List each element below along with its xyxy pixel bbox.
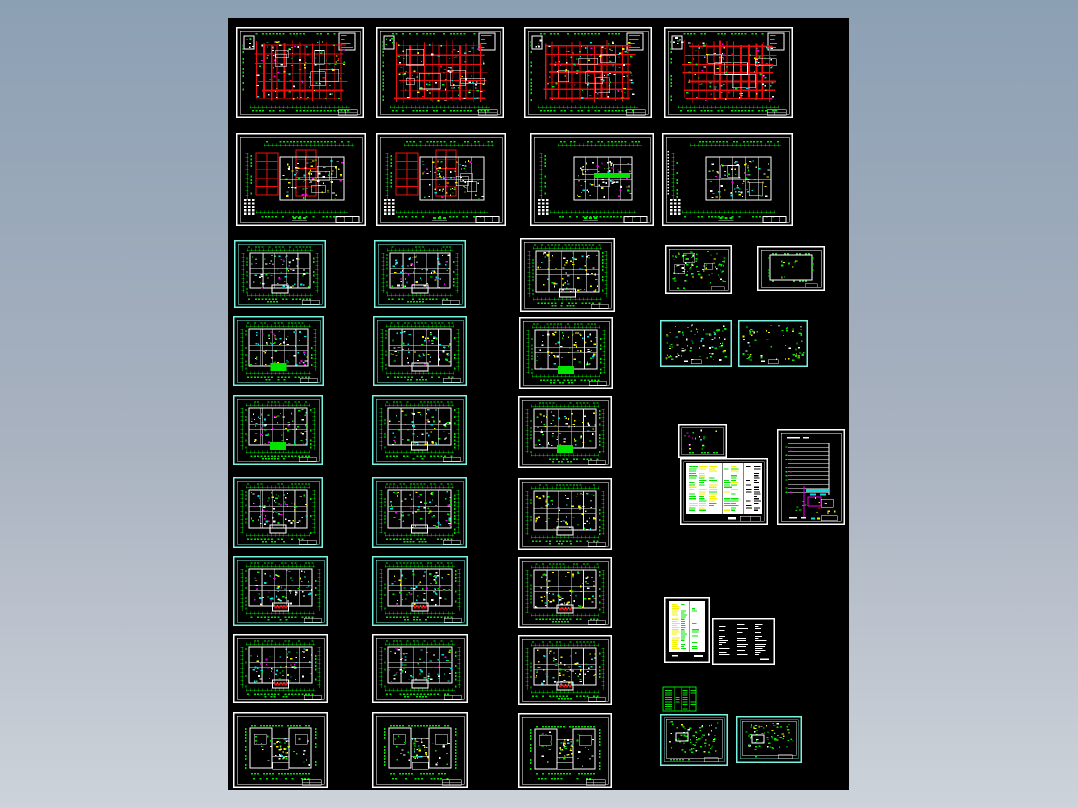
cad-sheet-plan-4: [664, 27, 793, 118]
cad-sheet-roof-1: [233, 712, 328, 788]
cad-sheet-tower-12: [518, 478, 612, 550]
cad-sheet-drawing: [376, 133, 506, 226]
cad-sheet-drawing: [372, 634, 468, 703]
cad-board: [228, 18, 849, 790]
cad-sheet-plan-8: [662, 133, 793, 226]
cad-sheet-drawing: [518, 713, 612, 788]
cad-sheet-drawing: [520, 238, 615, 312]
cad-sheet-drawing: [738, 320, 808, 367]
cad-sheet-drawing: [374, 240, 466, 308]
cad-sheet-tower-14: [372, 556, 468, 626]
cad-sheet-drawing: [712, 618, 775, 665]
cad-sheet-roof-3: [518, 713, 612, 788]
cad-sheet-drawing: [233, 316, 324, 386]
cad-sheet-drawing: [372, 556, 468, 626]
cad-sheet-tower-3: [520, 238, 615, 312]
cad-sheet-tower-10: [233, 477, 323, 548]
cad-sheet-small-plan-3: [660, 320, 732, 367]
cad-sheet-tower-2: [374, 240, 466, 308]
cad-sheet-drawing: [662, 686, 697, 712]
cad-sheet-tower-11: [372, 477, 467, 548]
cad-sheet-drawing: [376, 27, 504, 118]
cad-sheet-drawing: [372, 477, 467, 548]
cad-sheet-drawing: [233, 634, 328, 703]
cad-sheet-drawing: [518, 478, 612, 550]
cad-sheet-tower-15: [518, 557, 612, 628]
cad-sheet-drawing: [234, 240, 326, 308]
cad-sheet-tower-4: [233, 316, 324, 386]
cad-sheet-small-plan-4: [738, 320, 808, 367]
cad-sheet-notes-sheet: [712, 618, 775, 665]
cad-sheet-small-plan-6: [736, 716, 802, 763]
cad-sheet-tower-5: [373, 316, 467, 386]
cad-sheet-drawing: [233, 395, 323, 465]
cad-sheet-drawing: [524, 27, 652, 118]
cad-sheet-roof-2: [372, 712, 468, 788]
cad-sheet-drawing: [233, 477, 323, 548]
cad-sheet-schedule: [680, 458, 768, 525]
cad-sheet-drawing: [236, 133, 366, 226]
cad-sheet-drawing: [372, 395, 467, 465]
cad-sheet-small-plan-2: [757, 246, 825, 291]
cad-sheet-drawing: [236, 27, 364, 118]
cad-sheet-drawing: [736, 716, 802, 763]
cad-sheet-tower-7: [233, 395, 323, 465]
cad-sheet-drawing: [678, 424, 727, 458]
cad-sheet-plan-7: [530, 133, 654, 226]
cad-sheet-plan-3: [524, 27, 652, 118]
cad-sheet-drawing: [518, 396, 612, 468]
cad-sheet-drawing: [665, 245, 732, 294]
cad-sheet-plan-1: [236, 27, 364, 118]
cad-sheet-drawing: [757, 246, 825, 291]
cad-preview-page: [0, 0, 1078, 808]
cad-sheet-drawing: [233, 556, 328, 626]
cad-sheet-tower-1: [234, 240, 326, 308]
cad-sheet-small-plan-5: [660, 714, 728, 766]
cad-sheet-drawing: [530, 133, 654, 226]
cad-sheet-detail-plan: [678, 424, 727, 458]
cad-sheet-riser-diagram: [777, 429, 845, 525]
cad-sheet-tower-17: [372, 634, 468, 703]
cad-sheet-drawing: [664, 27, 793, 118]
cad-sheet-plan-5: [236, 133, 366, 226]
cad-sheet-drawing: [519, 317, 613, 389]
cad-sheet-tower-13: [233, 556, 328, 626]
cad-sheet-drawing: [660, 320, 732, 367]
cad-sheet-drawing: [660, 714, 728, 766]
cad-sheet-tower-18: [518, 635, 612, 705]
cad-sheet-tower-8: [372, 395, 467, 465]
cad-sheet-drawing: [777, 429, 845, 525]
cad-sheet-drawing: [373, 316, 467, 386]
cad-sheet-tower-16: [233, 634, 328, 703]
cad-sheet-drawing: [233, 712, 328, 788]
cad-sheet-mini-table: [662, 686, 697, 712]
cad-sheet-drawing: [680, 458, 768, 525]
cad-sheet-tower-9: [518, 396, 612, 468]
cad-sheet-drawing: [372, 712, 468, 788]
cad-sheet-plan-6: [376, 133, 506, 226]
cad-sheet-drawing: [518, 557, 612, 628]
cad-sheet-plan-2: [376, 27, 504, 118]
cad-sheet-drawing: [518, 635, 612, 705]
cad-sheet-tower-6: [519, 317, 613, 389]
cad-sheet-legend-sheet: [664, 597, 710, 663]
cad-sheet-drawing: [662, 133, 793, 226]
cad-sheet-drawing: [664, 597, 710, 663]
cad-sheet-small-plan-1: [665, 245, 732, 294]
